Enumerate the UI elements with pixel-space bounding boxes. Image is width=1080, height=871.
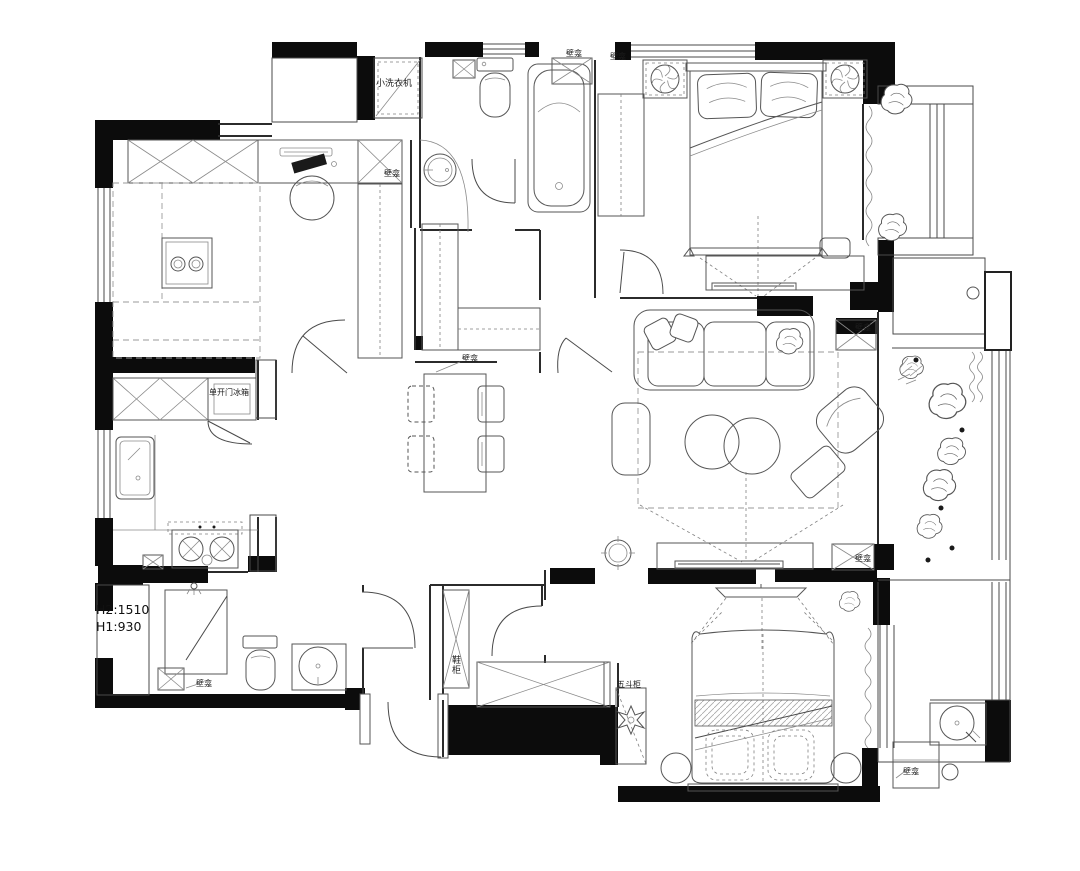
stove	[168, 522, 242, 568]
bedroom1-door	[620, 250, 663, 294]
ac-box-right	[823, 60, 867, 98]
window-tatami-left	[98, 188, 110, 302]
hall-wardrobe	[477, 662, 610, 707]
dining-chairs	[408, 386, 504, 472]
curtain-bedroom1	[866, 106, 872, 246]
coffee-tables	[685, 415, 780, 474]
label-five-drawer-chest: 五斗柜	[617, 681, 641, 689]
label-niche-balcony: 壁龛	[903, 768, 919, 776]
wardrobe-tatami	[358, 184, 402, 358]
side-table	[612, 403, 650, 475]
rug	[638, 352, 838, 508]
wardrobe-bedroom1	[598, 94, 644, 216]
bath2-door	[362, 592, 415, 648]
label-niche-tatami: 壁龛	[384, 170, 400, 178]
kitchen-sink	[116, 437, 154, 499]
bathroom-2	[97, 583, 415, 695]
label-niche-living-top: 壁龛	[855, 324, 871, 332]
bed-double	[684, 63, 828, 256]
shower	[165, 583, 227, 674]
tatami-door	[292, 55, 347, 373]
label-niche-bedroom1: 壁龛	[610, 53, 626, 61]
label-height-h1: H1:930	[96, 621, 141, 634]
toilet-top	[477, 58, 513, 117]
niche-box-tub	[552, 58, 592, 84]
bathtub	[528, 64, 590, 212]
kitchen	[113, 360, 276, 571]
tatami-platform	[113, 183, 260, 358]
floor-plan-drawing	[0, 0, 1080, 871]
label-niche-bath-top: 壁龛	[566, 50, 582, 58]
master-bedroom	[616, 584, 871, 791]
nightstand-left	[661, 753, 691, 783]
vanity-sink	[420, 140, 468, 232]
entry-door	[360, 694, 448, 758]
interior-walls	[208, 57, 1010, 762]
ottoman	[789, 444, 848, 501]
bathroom-door	[472, 159, 515, 203]
window-kitchen-left	[98, 430, 110, 518]
label-washing-machine: 小洗衣机	[376, 80, 412, 89]
floor-plan: 小洗衣机 壁龛 壁龛 壁龛 壁龛 壁龛 壁龛 壁龛 壁龛 单开门冰箱 鞋柜 五斗…	[0, 0, 1080, 871]
dining-area	[408, 374, 504, 492]
label-niche-living-bottom: 壁龛	[855, 555, 871, 563]
hall-closet	[422, 224, 612, 373]
label-shoe-cabinet: 鞋柜	[450, 655, 459, 675]
sofa	[634, 310, 814, 390]
label-niche-hall: 壁龛	[462, 355, 478, 363]
balcony-top-right	[879, 84, 912, 240]
niche-box-bath2	[158, 668, 184, 690]
window-garden-right	[992, 348, 1006, 560]
basin-2	[292, 644, 346, 690]
master-door	[492, 586, 542, 656]
equipment-platform	[893, 258, 1011, 350]
label-fridge: 单开门冰箱	[209, 389, 249, 397]
living-door	[558, 338, 612, 373]
window-balcony-bottomright	[992, 582, 1006, 700]
ac-box-left	[643, 60, 687, 98]
window-master-right	[880, 625, 894, 748]
curtain-master	[865, 628, 871, 748]
garden-right	[898, 352, 983, 563]
window-bath-top	[483, 44, 525, 54]
toilet-2	[243, 636, 277, 690]
tv-console-living	[657, 543, 813, 569]
label-niche-bath2: 壁龛	[196, 680, 212, 688]
exhaust-box	[453, 60, 475, 78]
window-bedroom1-top	[631, 45, 755, 57]
five-drawer-chest	[616, 688, 646, 764]
mop-basin	[930, 703, 986, 745]
ceiling-lamp	[601, 536, 635, 570]
tv-master	[716, 584, 806, 597]
living-room	[601, 310, 890, 570]
bedroom-1	[598, 60, 872, 296]
balcony-cabinet	[893, 742, 958, 788]
nightstand-right	[831, 753, 861, 783]
bed-master	[688, 630, 838, 791]
label-height-h2: H2:1510	[96, 604, 149, 617]
tv-cabinet-bedroom1	[706, 238, 864, 290]
